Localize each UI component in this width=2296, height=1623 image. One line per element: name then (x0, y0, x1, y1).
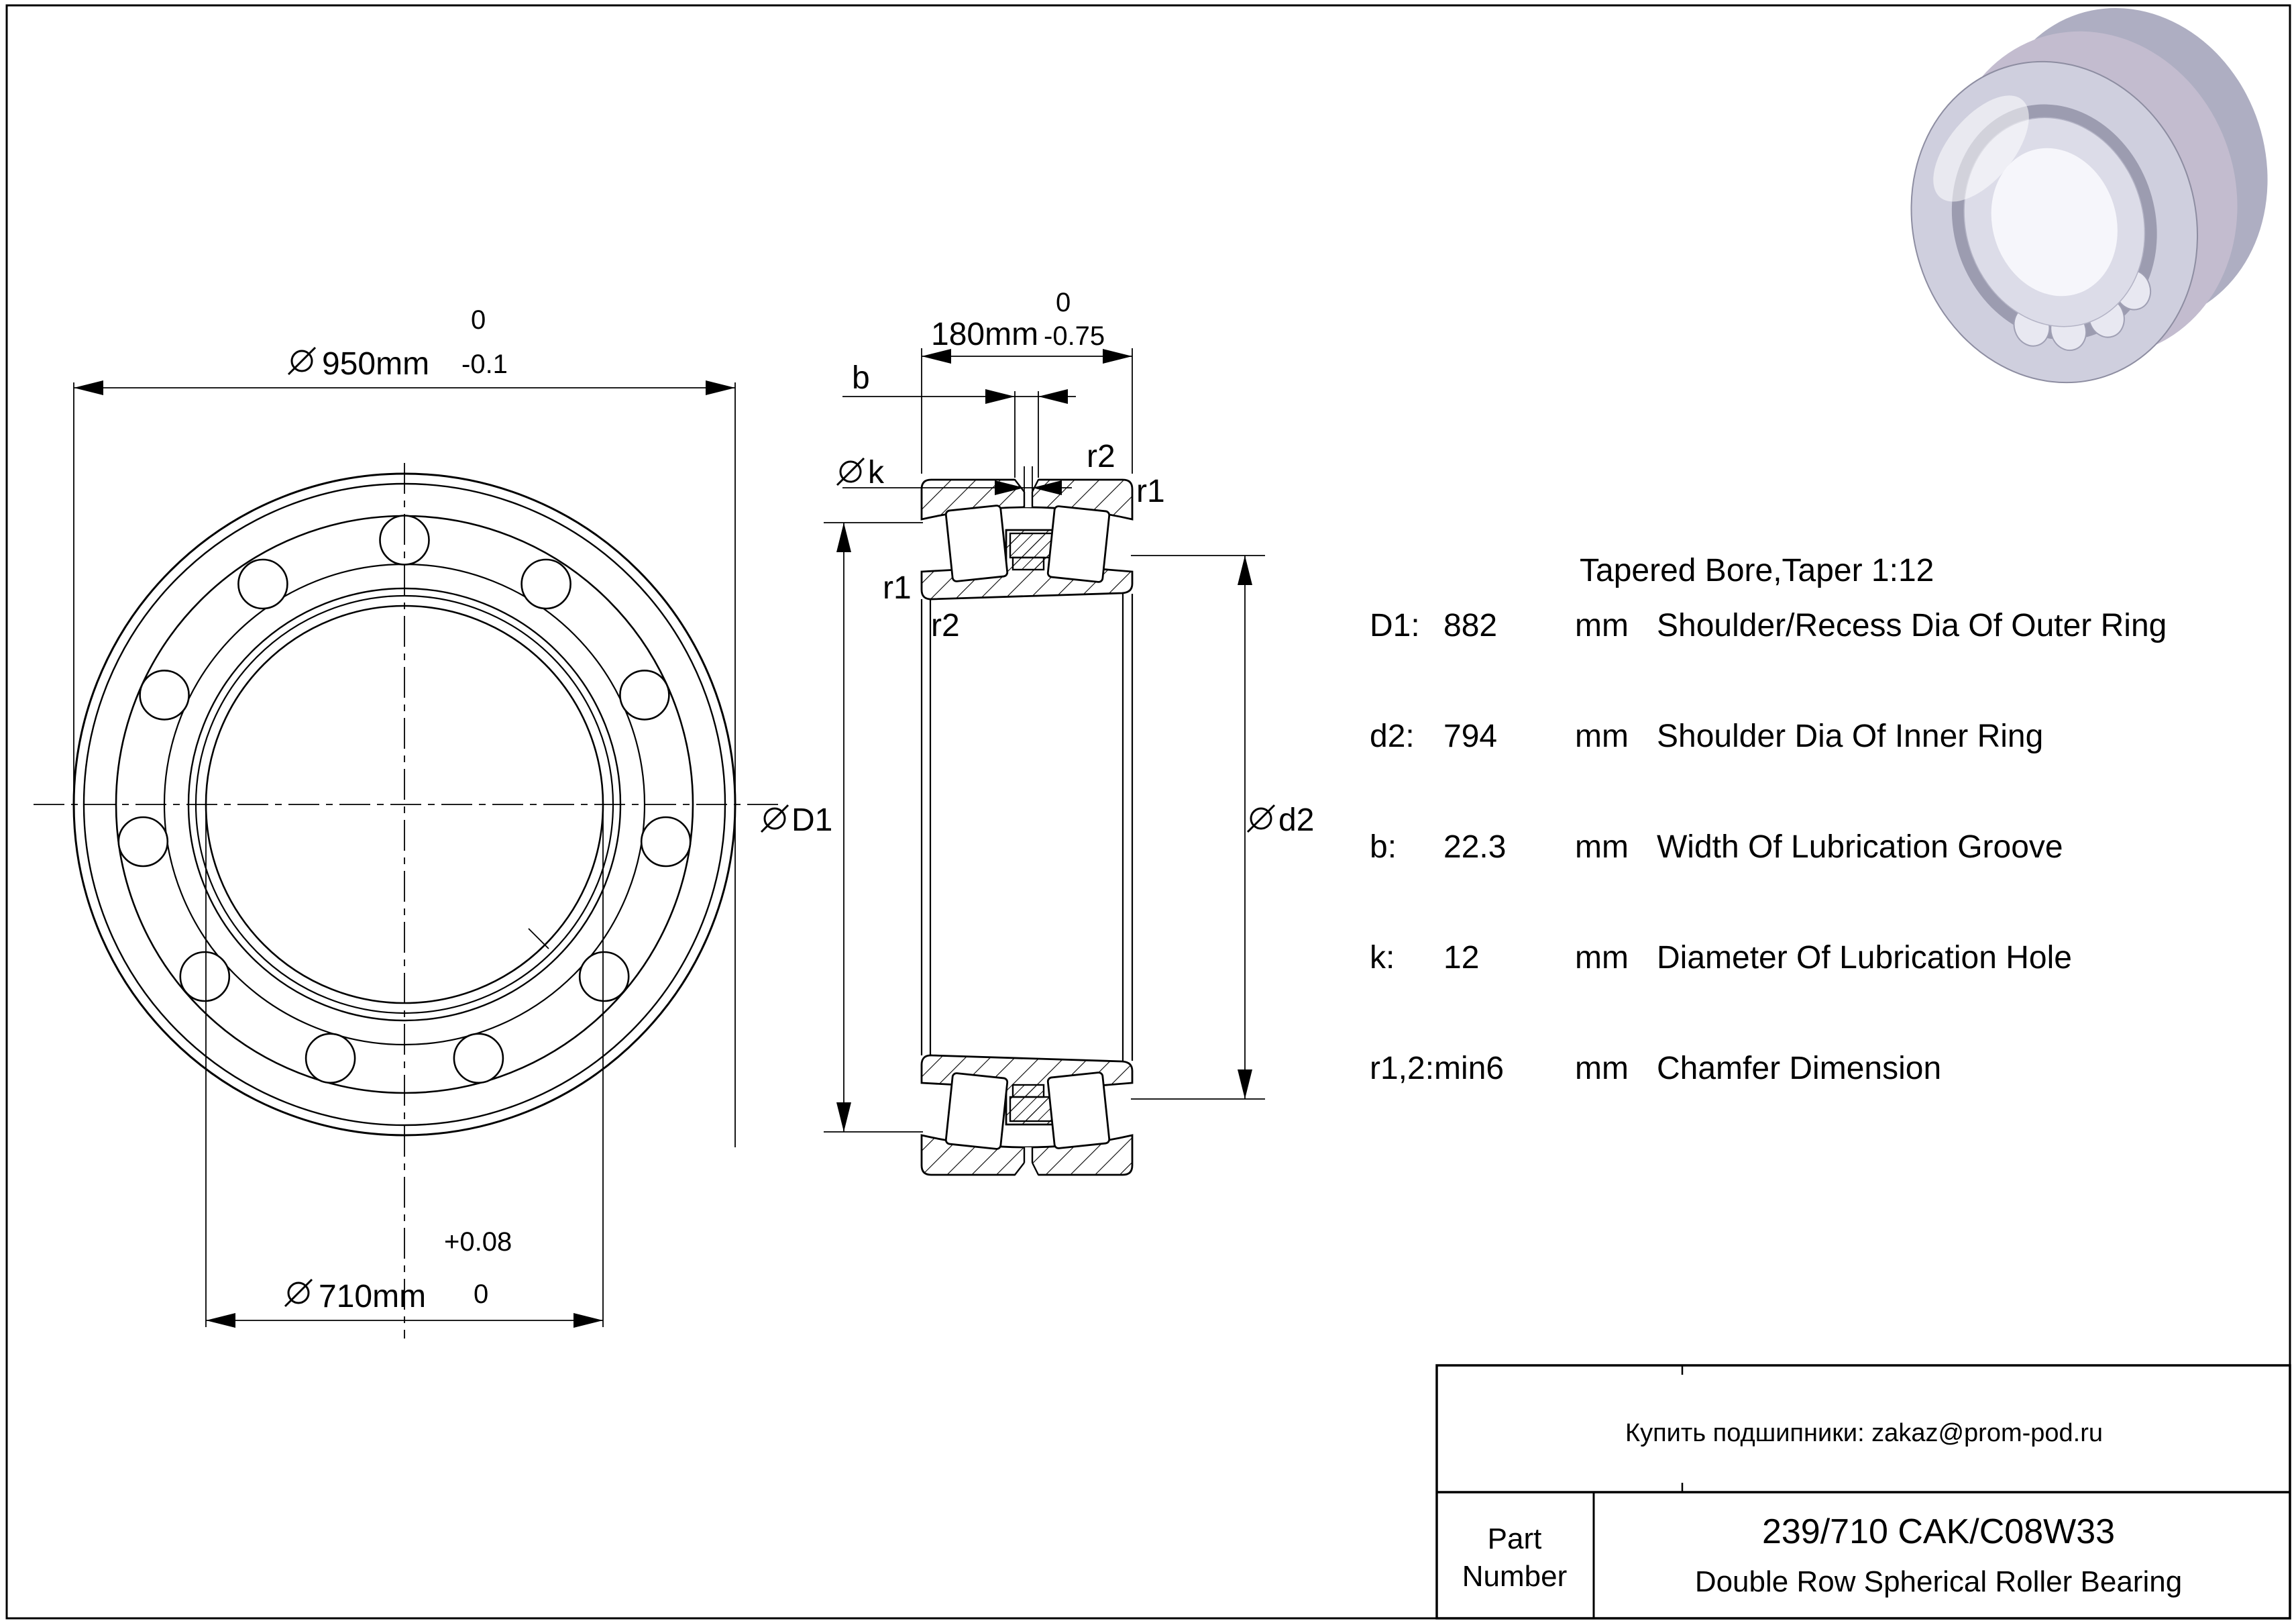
roller-right (1048, 506, 1110, 582)
spec-value: 882 (1443, 608, 1497, 643)
guide-ring-tab (1013, 1085, 1044, 1097)
section-top-half (922, 478, 1132, 599)
spec-param: b: (1370, 829, 1397, 865)
spec-param: k: (1370, 940, 1395, 976)
bearing-drawing-page: 950mm 0 -0.1 710mm +0.08 0 (0, 0, 2296, 1623)
spec-unit: mm (1575, 719, 1629, 754)
part-number: 239/710 CAK/C08W33 (1762, 1512, 2115, 1551)
part-label-line1: Part (1488, 1522, 1542, 1555)
od-value: 950mm (322, 346, 429, 382)
spec-desc: Width Of Lubrication Groove (1657, 829, 2063, 865)
spec-param: D1: (1370, 608, 1420, 643)
arrow-right (573, 1313, 603, 1328)
spec-value: 794 (1443, 719, 1497, 754)
width-tol-upper: 0 (1056, 288, 1071, 317)
roller-right (1048, 1072, 1110, 1149)
part-label-line2: Number (1462, 1560, 1568, 1593)
spec-panel: Tapered Bore,Taper 1:12 D1: 882 mm Shoul… (1370, 553, 2167, 1086)
arrow-left (206, 1313, 235, 1328)
label-D1: D1 (791, 802, 832, 838)
od-tol-upper: 0 (471, 305, 486, 335)
label-r2-left: r2 (931, 608, 960, 643)
roller-left (946, 505, 1008, 582)
section-bottom-half (922, 1055, 1132, 1176)
dim-d2: d2 (1131, 556, 1314, 1099)
spec-value: 22.3 (1443, 829, 1506, 865)
width-value: 180mm (931, 317, 1038, 352)
spec-param: d2: (1370, 719, 1415, 754)
od-tol-lower: -0.1 (461, 350, 508, 379)
bore-tol-upper: +0.08 (444, 1227, 512, 1257)
guide-ring-tab (1013, 558, 1044, 570)
width-tol-lower: -0.75 (1044, 321, 1105, 351)
diameter-symbol (288, 348, 315, 374)
spec-unit: mm (1575, 608, 1629, 643)
label-d2: d2 (1278, 802, 1314, 838)
arrow-right (706, 380, 735, 395)
spec-desc: Shoulder/Recess Dia Of Outer Ring (1657, 608, 2167, 643)
bearing-3d-render (1861, 0, 2296, 420)
bore-tol-lower: 0 (474, 1279, 488, 1309)
label-k: k (868, 455, 885, 490)
diameter-symbol (1248, 805, 1274, 832)
spec-value: 12 (1443, 940, 1479, 976)
dim-D1: D1 (761, 523, 923, 1132)
spec-desc: Chamfer Dimension (1657, 1051, 1941, 1086)
diameter-symbol (837, 458, 864, 485)
section-bore-face-lines (922, 594, 1132, 1061)
spec-param: r1,2:min6 (1370, 1051, 1504, 1086)
spec-unit: mm (1575, 1051, 1629, 1086)
spec-desc: Shoulder Dia Of Inner Ring (1657, 719, 2043, 754)
spec-header: Tapered Bore,Taper 1:12 (1580, 553, 1934, 588)
arrow-left (74, 380, 103, 395)
title-block: Купить подшипники: zakaz@prom-pod.ru Par… (1437, 1365, 2290, 1618)
diameter-symbol (761, 805, 788, 832)
spec-desc: Diameter Of Lubrication Hole (1657, 940, 2072, 976)
bore-value: 710mm (319, 1279, 426, 1314)
spec-unit: mm (1575, 940, 1629, 976)
contact-text: Купить подшипники: zakaz@prom-pod.ru (1625, 1419, 2103, 1447)
roller-left (946, 1073, 1008, 1149)
spec-unit: mm (1575, 829, 1629, 865)
label-b: b (852, 360, 870, 396)
leader-stub-45deg (529, 929, 549, 949)
label-r1-top-right: r1 (1136, 474, 1165, 509)
label-r2-top: r2 (1087, 439, 1115, 474)
diameter-symbol (285, 1279, 312, 1306)
part-description: Double Row Spherical Roller Bearing (1695, 1565, 2182, 1598)
technical-drawing-canvas: 950mm 0 -0.1 710mm +0.08 0 (0, 0, 2296, 1623)
front-view-centerlines (34, 463, 785, 1339)
label-r1-left: r1 (883, 570, 912, 606)
